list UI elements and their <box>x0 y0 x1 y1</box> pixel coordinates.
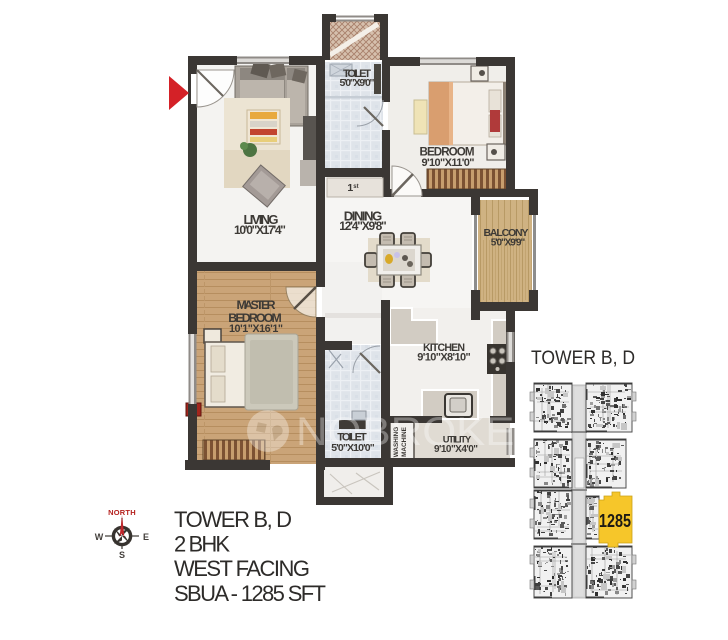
svg-text:2 BHK: 2 BHK <box>174 532 230 557</box>
svg-text:5'0"X9'9": 5'0"X9'9" <box>491 238 526 249</box>
svg-text:MACHINE: MACHINE <box>401 426 408 457</box>
svg-text:9'10"X4'0": 9'10"X4'0" <box>434 444 478 455</box>
svg-text:W: W <box>95 532 104 542</box>
svg-text:WASHING: WASHING <box>393 427 400 458</box>
svg-text:UTILITY: UTILITY <box>443 434 472 445</box>
svg-text:9'10"X11'0": 9'10"X11'0" <box>422 157 475 169</box>
svg-text:5'0"X9'0": 5'0"X9'0" <box>340 77 375 89</box>
svg-text:S: S <box>119 550 125 560</box>
svg-text:1285: 1285 <box>599 511 631 531</box>
svg-text:12'4"X9'8": 12'4"X9'8" <box>339 219 387 233</box>
svg-text:MASTER: MASTER <box>237 298 276 312</box>
svg-text:9'10"X8'10": 9'10"X8'10" <box>417 352 471 364</box>
svg-text:10'1"X16'1": 10'1"X16'1" <box>229 323 283 335</box>
svg-text:WEST FACING: WEST FACING <box>174 556 310 581</box>
svg-text:E: E <box>143 532 149 542</box>
svg-text:TOWER B, D: TOWER B, D <box>174 507 292 532</box>
svg-text:10'0"X17'4": 10'0"X17'4" <box>234 223 286 237</box>
svg-text:5'0"X10'0": 5'0"X10'0" <box>331 442 375 454</box>
svg-text:TOWER B, D: TOWER B, D <box>531 347 635 369</box>
svg-text:SBUA - 1285 SFT: SBUA - 1285 SFT <box>174 581 326 606</box>
